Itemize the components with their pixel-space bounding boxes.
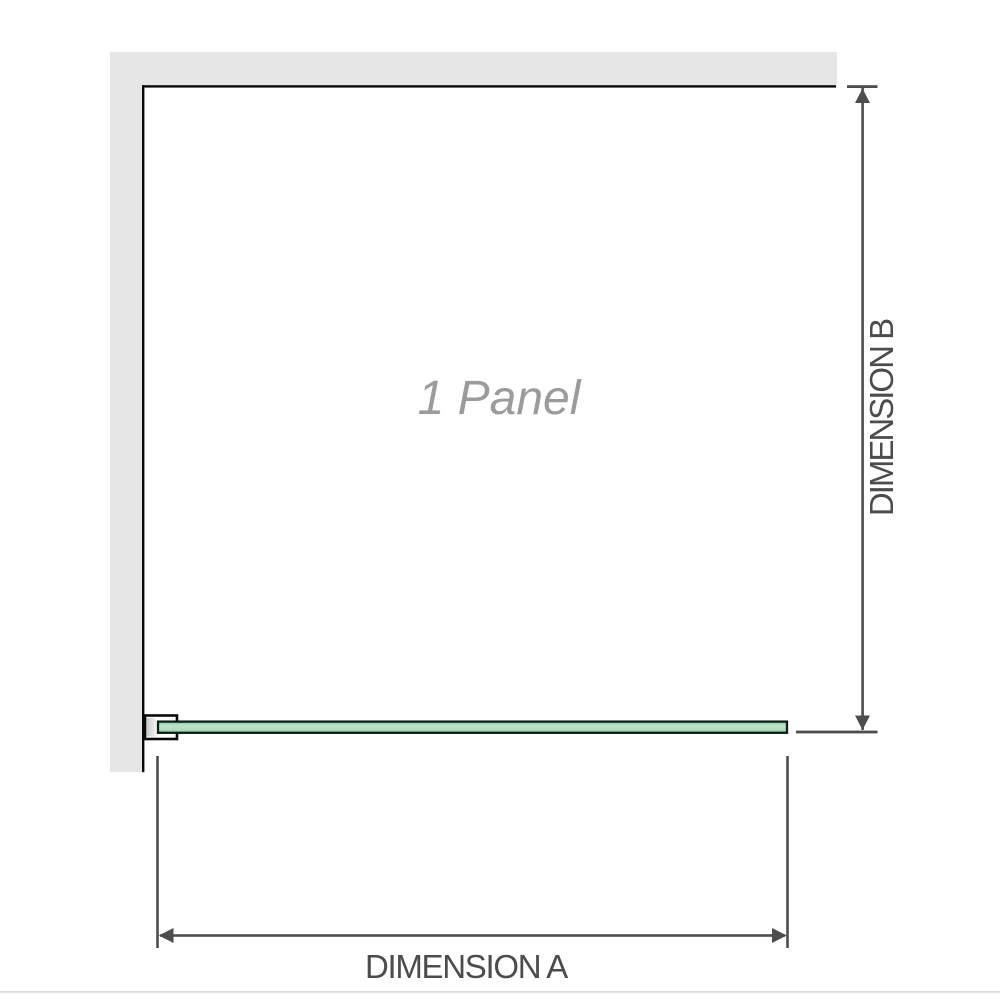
svg-text:DIMENSION A: DIMENSION A — [365, 948, 568, 985]
svg-text:DIMENSION B: DIMENSION B — [863, 319, 900, 516]
svg-text:1 Panel: 1 Panel — [418, 372, 582, 425]
